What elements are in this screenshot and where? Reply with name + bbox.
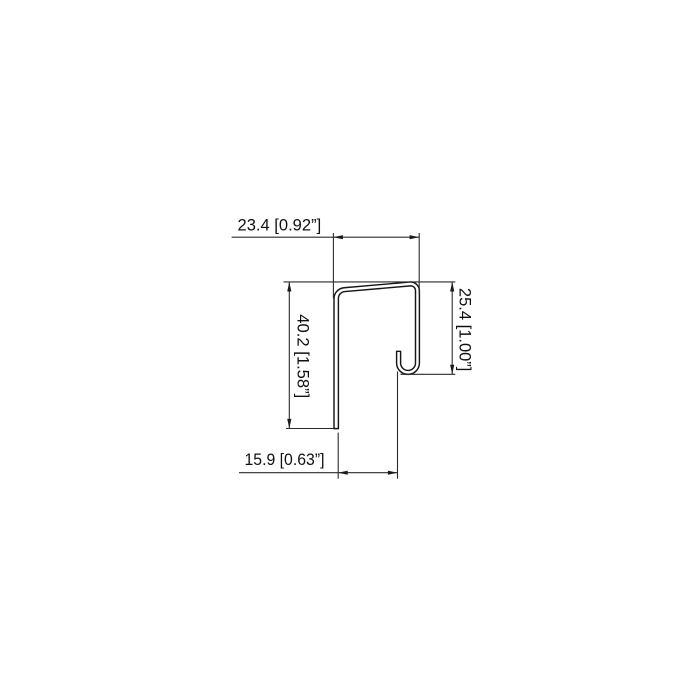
svg-text:15.9 [0.63”]: 15.9 [0.63”]: [245, 451, 325, 469]
svg-text:25.4 [1.00”]: 25.4 [1.00”]: [456, 288, 474, 372]
svg-text:23.4 [0.92”]: 23.4 [0.92”]: [238, 217, 322, 235]
svg-text:40.2 [1.58”]: 40.2 [1.58”]: [294, 314, 312, 398]
